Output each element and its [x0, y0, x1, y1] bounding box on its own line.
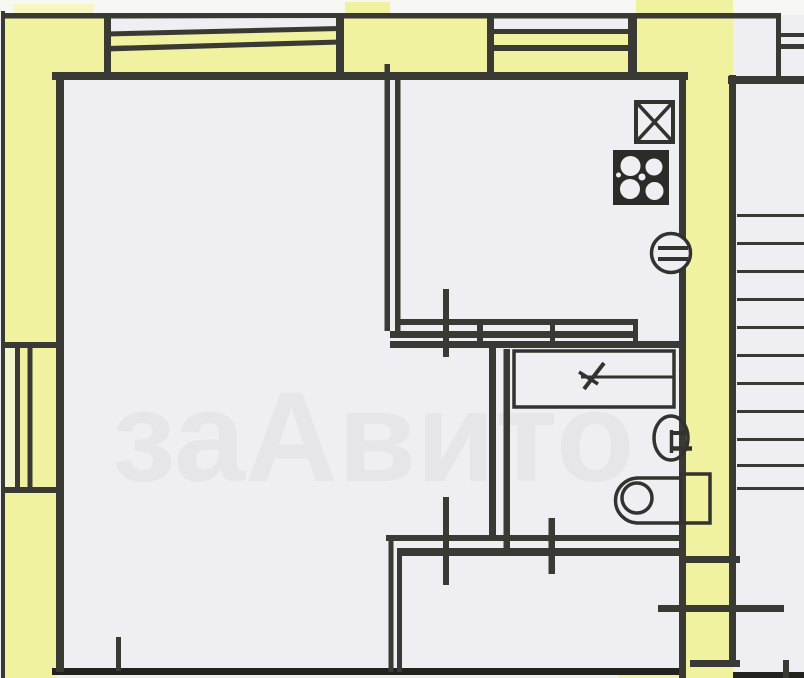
svg-text:заАвито: заАвито [112, 366, 634, 509]
